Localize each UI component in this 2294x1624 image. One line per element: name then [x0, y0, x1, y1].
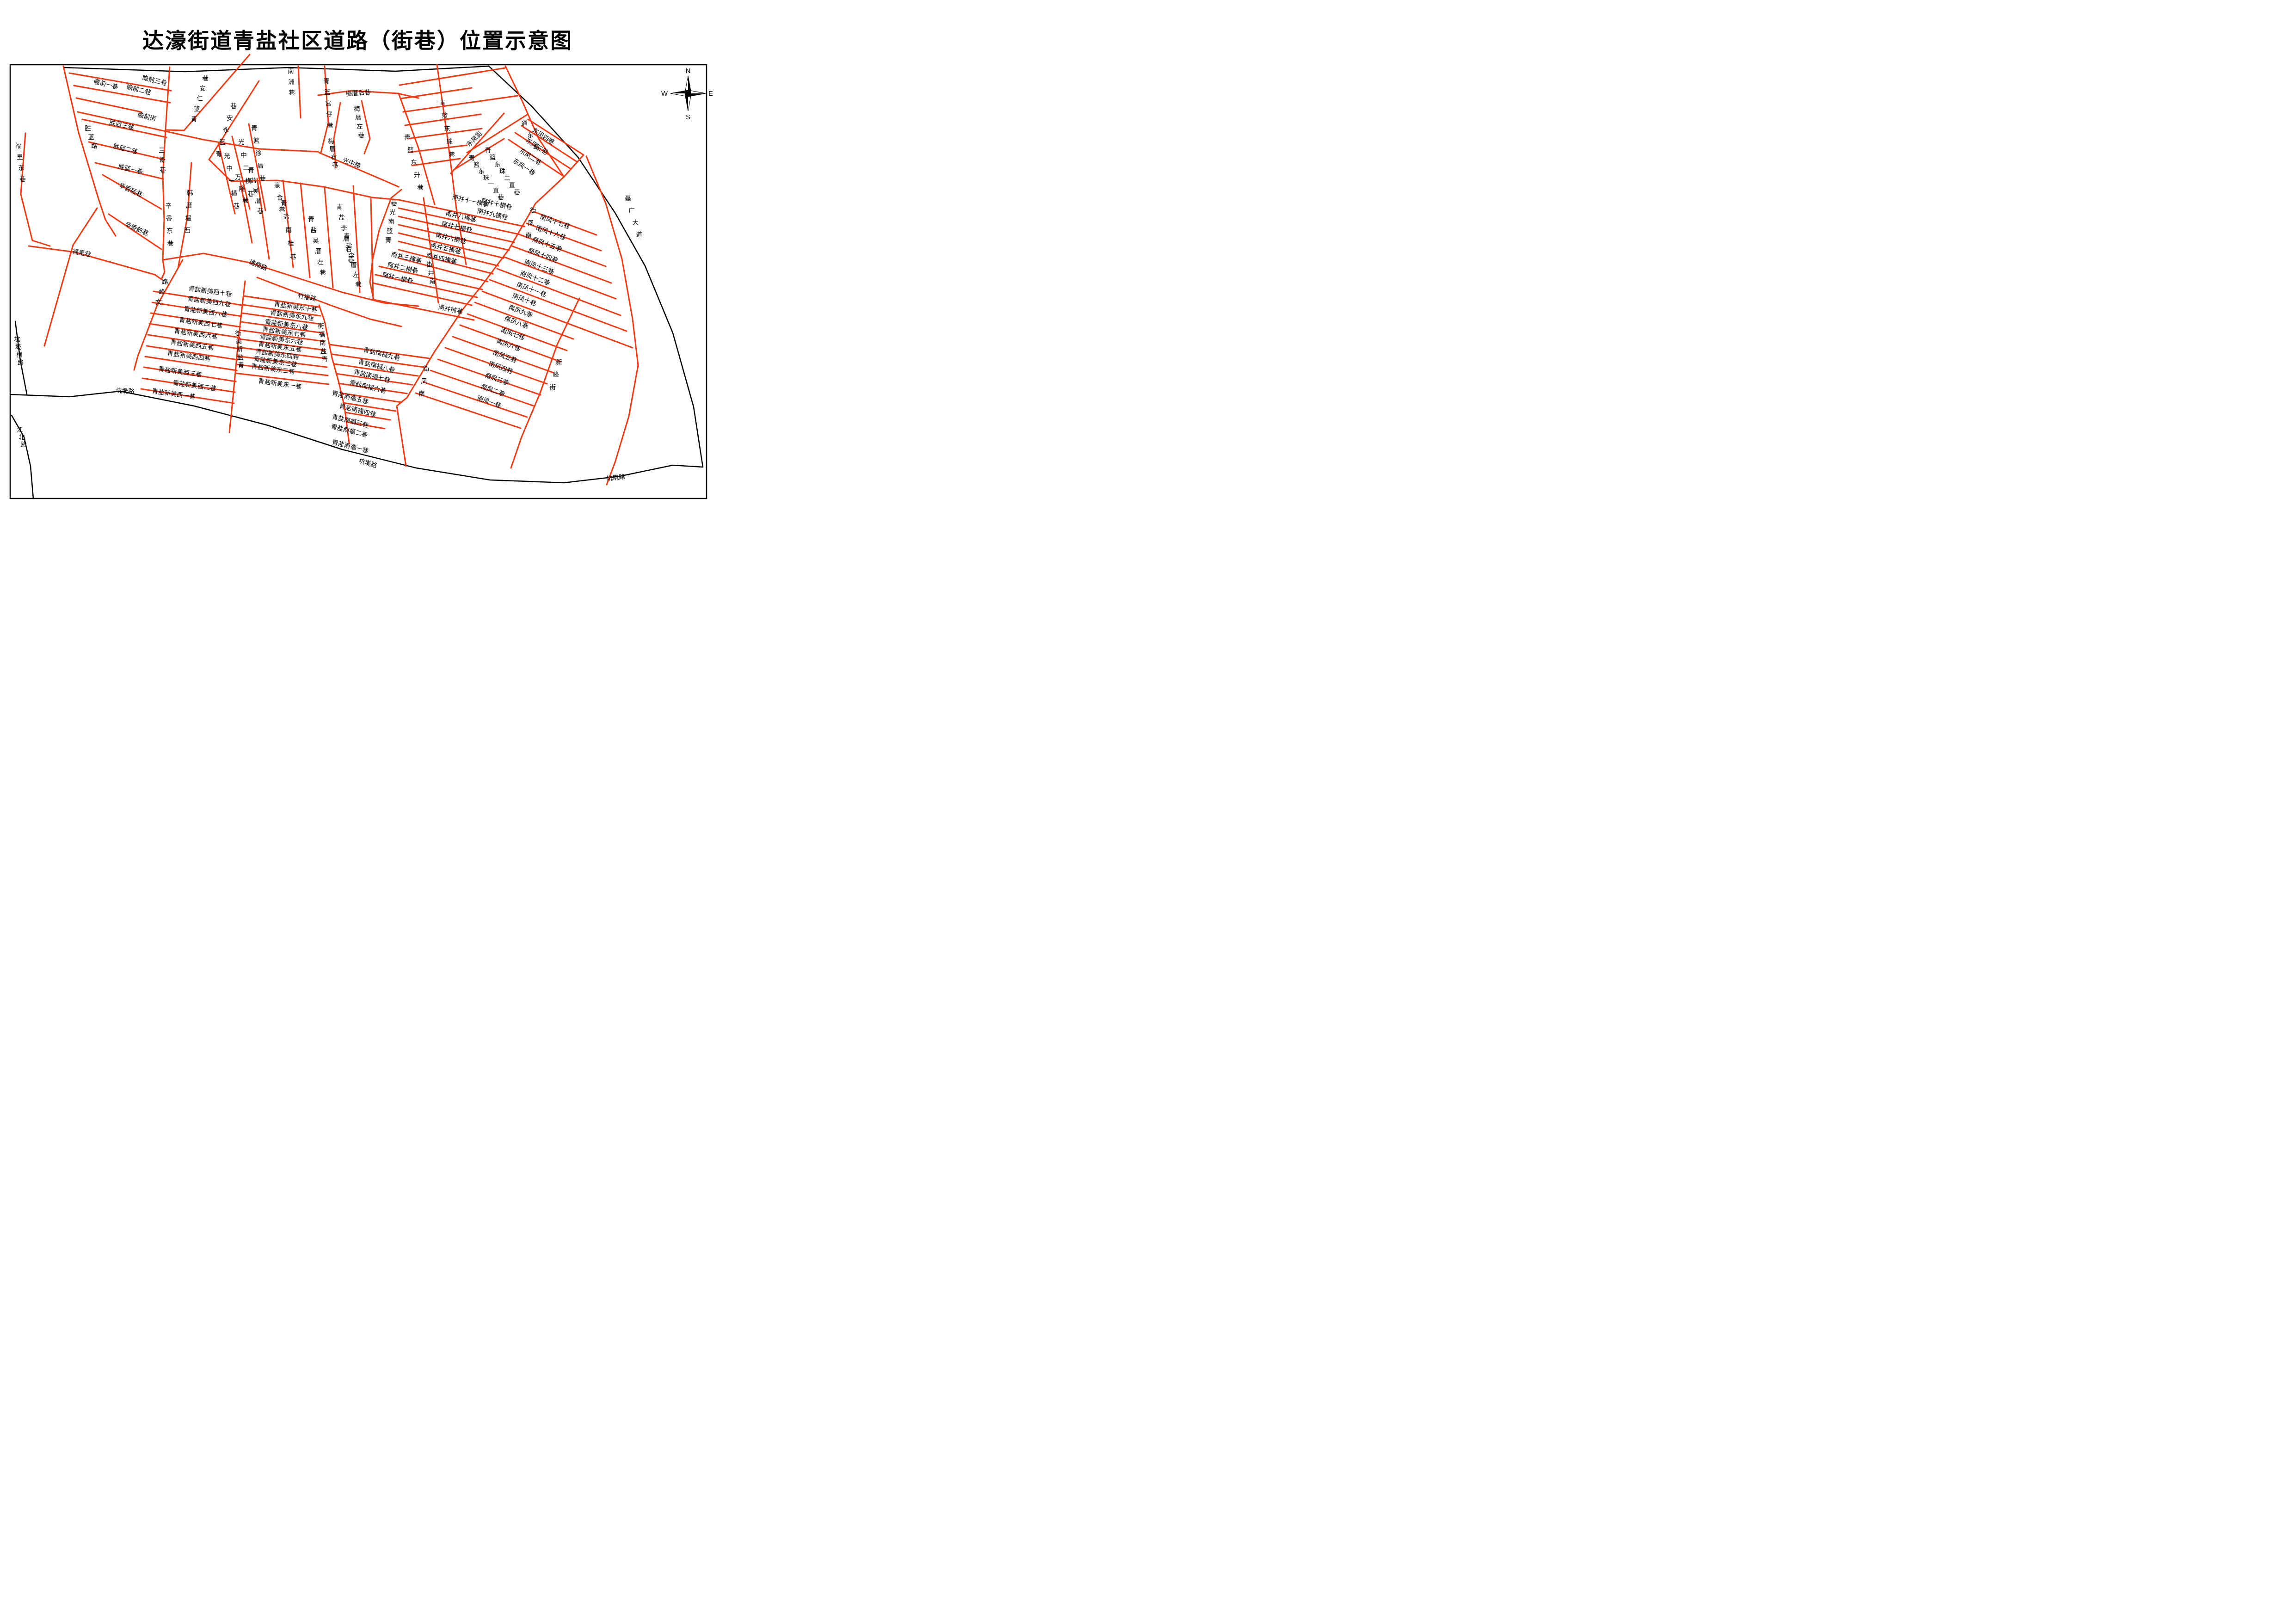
svg-text:篮: 篮	[442, 112, 448, 119]
svg-text:巷: 巷	[160, 166, 166, 173]
svg-text:辛: 辛	[165, 203, 172, 209]
svg-text:井: 井	[428, 270, 434, 277]
svg-text:青: 青	[238, 362, 244, 369]
svg-text:街: 街	[530, 207, 536, 214]
street-label: 三奇巷	[159, 147, 166, 173]
svg-text:横: 横	[16, 351, 23, 358]
street-label: 巷光南篮青	[385, 200, 397, 244]
svg-text:路: 路	[91, 142, 98, 149]
street-label: 辛香东巷	[165, 203, 174, 247]
road-north-boundary-road	[64, 66, 489, 72]
svg-text:盐: 盐	[283, 213, 289, 220]
svg-text:洲: 洲	[288, 79, 295, 86]
svg-text:左: 左	[317, 258, 324, 265]
svg-text:巷: 巷	[449, 151, 455, 158]
svg-text:巷: 巷	[355, 281, 362, 288]
svg-text:二: 二	[504, 175, 510, 182]
svg-text:盐: 盐	[237, 354, 244, 361]
svg-text:篮: 篮	[490, 154, 496, 161]
svg-text:青: 青	[321, 356, 328, 363]
street-label: 南洲巷	[288, 68, 295, 96]
compass-label-n: N	[686, 67, 691, 75]
svg-text:巷: 巷	[233, 203, 240, 209]
street-label: 梅厝右巷	[328, 138, 338, 168]
svg-text:街: 街	[318, 323, 324, 330]
svg-text:磊: 磊	[625, 195, 631, 202]
svg-text:南: 南	[285, 227, 292, 234]
svg-text:升: 升	[414, 172, 420, 178]
road-福里巷	[29, 246, 165, 279]
svg-text:万: 万	[235, 174, 241, 181]
svg-text:凤: 凤	[421, 378, 427, 385]
svg-text:新: 新	[556, 359, 562, 366]
svg-text:街: 街	[423, 365, 430, 372]
svg-text:东: 东	[494, 161, 501, 168]
svg-text:宫: 宫	[325, 100, 332, 107]
compass-label-s: S	[686, 113, 690, 121]
svg-text:吴: 吴	[313, 237, 319, 244]
svg-text:厝: 厝	[255, 197, 261, 204]
svg-text:篮: 篮	[253, 137, 260, 144]
svg-text:南: 南	[525, 232, 532, 239]
svg-text:巷: 巷	[279, 206, 285, 213]
street-label: 辛香后巷	[118, 182, 144, 198]
svg-text:青: 青	[308, 216, 314, 223]
street-label: 青篮东珠二直巷	[485, 147, 520, 196]
svg-text:篮: 篮	[219, 139, 226, 146]
svg-text:青: 青	[215, 151, 222, 158]
svg-text:奇: 奇	[159, 156, 166, 164]
svg-text:街: 街	[549, 384, 556, 391]
svg-text:东: 东	[478, 168, 485, 175]
svg-text:胜: 胜	[85, 125, 91, 132]
svg-text:梅: 梅	[328, 138, 334, 145]
svg-text:巷: 巷	[514, 189, 520, 196]
svg-text:街: 街	[426, 261, 433, 268]
svg-text:中: 中	[240, 152, 247, 159]
svg-text:巷: 巷	[202, 75, 209, 82]
svg-text:永: 永	[223, 127, 229, 134]
street-label: 巷安仁篮青	[191, 75, 209, 123]
svg-text:光: 光	[224, 153, 230, 160]
svg-text:青: 青	[323, 78, 330, 85]
svg-text:东: 东	[527, 132, 534, 139]
svg-text:路: 路	[18, 359, 24, 366]
svg-text:巷: 巷	[167, 240, 174, 247]
svg-text:一: 一	[228, 178, 235, 185]
svg-text:巷: 巷	[19, 176, 26, 183]
svg-text:峰: 峰	[159, 289, 165, 295]
svg-text:美: 美	[236, 338, 242, 345]
street-label: 坑墘路	[116, 387, 135, 395]
svg-text:吴: 吴	[252, 187, 259, 194]
svg-text:光: 光	[389, 209, 396, 216]
street-label: 青盐新美西二巷	[172, 379, 217, 392]
street-label: 坑墘路	[606, 473, 626, 482]
street-label: 竹福路	[297, 292, 317, 302]
svg-text:隆: 隆	[239, 185, 245, 192]
street-label: 南凤四巷	[488, 360, 514, 375]
street-label: 街凤南	[418, 365, 430, 397]
svg-text:南: 南	[418, 390, 425, 397]
road-青盐吴厝巷	[257, 178, 269, 259]
road-lane	[403, 96, 518, 112]
svg-text:篮: 篮	[407, 147, 414, 154]
svg-text:大: 大	[632, 219, 639, 226]
svg-text:盐: 盐	[346, 242, 352, 249]
svg-text:珠: 珠	[483, 174, 490, 181]
road-南凤一巷	[416, 393, 521, 428]
road-瞻前二巷	[76, 98, 141, 112]
street-label: 南凤六巷	[496, 338, 522, 353]
svg-text:一: 一	[488, 181, 494, 188]
svg-text:横: 横	[231, 190, 237, 197]
svg-text:青: 青	[485, 147, 491, 154]
svg-text:蓝: 蓝	[88, 134, 94, 141]
svg-text:巷: 巷	[259, 175, 266, 182]
svg-text:巷: 巷	[230, 103, 237, 110]
street-label: 南凤一巷	[476, 394, 502, 410]
svg-text:路: 路	[162, 278, 168, 285]
road-lane	[412, 159, 460, 166]
svg-text:三: 三	[159, 147, 165, 154]
svg-text:徐: 徐	[255, 150, 262, 157]
svg-text:西: 西	[184, 227, 191, 234]
svg-text:厝: 厝	[329, 146, 336, 153]
street-label: 梅厝左巷	[354, 105, 364, 139]
svg-text:青: 青	[248, 167, 254, 174]
road-青林滨江路	[44, 208, 97, 346]
road-青盐南桂巷	[301, 183, 310, 277]
svg-text:里: 里	[17, 154, 23, 160]
svg-text:盐: 盐	[320, 348, 327, 355]
street-label: 南凤二巷	[480, 383, 506, 398]
svg-text:盐: 盐	[338, 214, 345, 221]
compass-label-w: W	[661, 90, 668, 98]
svg-text:珠: 珠	[499, 168, 506, 175]
svg-text:东: 东	[411, 159, 417, 166]
street-label: 青盐新美西五巷	[170, 338, 215, 351]
svg-text:安: 安	[199, 85, 206, 92]
svg-text:厝: 厝	[351, 262, 357, 269]
svg-text:篮: 篮	[387, 228, 393, 234]
svg-text:巷: 巷	[417, 184, 424, 191]
street-label: 青盐新美东一巷	[258, 377, 302, 390]
street-label: 胜蓝三巷	[109, 118, 135, 131]
street-label: 江北路	[17, 426, 27, 448]
svg-text:江: 江	[17, 426, 23, 433]
svg-text:右: 右	[331, 154, 337, 160]
street-label: 坑墘路	[358, 457, 378, 469]
svg-text:青: 青	[191, 116, 197, 123]
street-label: 青盐新美西六巷	[174, 327, 218, 340]
svg-text:厝: 厝	[355, 114, 362, 121]
svg-text:直: 直	[509, 182, 516, 189]
svg-text:光: 光	[238, 139, 245, 146]
svg-text:巷: 巷	[327, 122, 333, 129]
svg-text:南: 南	[320, 339, 326, 346]
svg-text:新: 新	[236, 346, 243, 353]
svg-text:青: 青	[251, 125, 258, 132]
svg-text:墘: 墘	[15, 344, 22, 351]
street-label: 青盐新美西八巷	[184, 305, 228, 318]
svg-text:塭: 塭	[185, 215, 191, 221]
svg-text:豪: 豪	[274, 182, 281, 189]
street-label: 胜蓝一巷	[117, 163, 144, 176]
svg-text:盐: 盐	[250, 177, 257, 184]
road-lane	[401, 88, 472, 98]
svg-text:路: 路	[533, 143, 540, 150]
svg-text:福: 福	[15, 142, 22, 149]
svg-text:南: 南	[429, 278, 436, 285]
svg-text:东: 东	[444, 125, 450, 132]
svg-text:青: 青	[281, 200, 287, 207]
svg-text:青: 青	[439, 99, 446, 106]
street-label: 青盐吴厝左巷	[308, 216, 326, 276]
svg-text:梅: 梅	[354, 105, 360, 112]
svg-text:福: 福	[319, 331, 325, 338]
street-label: 福里巷	[72, 248, 92, 258]
svg-text:巷: 巷	[332, 161, 338, 168]
road-青盐李厝左巷	[371, 199, 373, 300]
street-label: 瞻前三巷	[141, 74, 168, 87]
svg-text:北: 北	[18, 434, 25, 441]
street-label: 梅厝后巷	[345, 88, 371, 98]
svg-text:安: 安	[227, 115, 233, 122]
svg-text:南: 南	[288, 68, 294, 75]
street-label: 青盐新美西七巷	[179, 316, 223, 329]
svg-text:青: 青	[404, 134, 411, 141]
svg-text:广: 广	[628, 207, 635, 214]
svg-text:厝: 厝	[258, 162, 264, 169]
street-label: 韩厝塭西	[184, 190, 193, 234]
svg-text:文: 文	[155, 299, 162, 306]
svg-text:路: 路	[20, 441, 27, 448]
svg-text:道: 道	[636, 231, 642, 238]
road-南凤二巷	[423, 382, 527, 417]
street-label: 南井七横巷	[441, 220, 473, 234]
svg-text:李: 李	[348, 252, 355, 259]
svg-text:青: 青	[344, 233, 350, 240]
svg-text:仔: 仔	[326, 111, 332, 118]
svg-text:篮: 篮	[324, 89, 331, 96]
svg-text:巷: 巷	[242, 197, 249, 204]
street-label: 通南路	[248, 258, 269, 272]
svg-text:青: 青	[468, 155, 475, 162]
svg-text:巷: 巷	[391, 200, 397, 207]
road-福里东巷	[21, 133, 50, 246]
street-label: 青盐新美西三巷	[158, 365, 203, 378]
svg-text:桂: 桂	[288, 240, 294, 247]
svg-text:香: 香	[166, 215, 172, 222]
svg-text:李: 李	[341, 225, 347, 232]
street-label: 新峰街	[549, 359, 562, 391]
street-label: 胜蓝二巷	[112, 142, 139, 155]
svg-text:篮: 篮	[474, 161, 480, 168]
street-label: 青篮东升巷	[404, 134, 424, 191]
svg-text:南: 南	[388, 218, 394, 225]
svg-text:青: 青	[336, 203, 343, 210]
svg-text:巷: 巷	[289, 89, 295, 96]
svg-text:巷: 巷	[290, 253, 296, 260]
street-label: 光中路	[342, 157, 362, 170]
street-label: 南凤十巷	[511, 292, 537, 308]
svg-text:盐: 盐	[310, 227, 317, 234]
street-label: 胜蓝路	[85, 125, 98, 149]
street-label: 磊广大道	[625, 195, 642, 238]
svg-text:巷: 巷	[358, 132, 364, 139]
street-label: 青盐南福五巷	[331, 389, 369, 405]
svg-text:通: 通	[521, 120, 528, 127]
svg-text:巷: 巷	[498, 194, 504, 201]
svg-text:巷: 巷	[320, 269, 326, 276]
road-青篮仁安巷	[166, 55, 250, 130]
compass: NSWE	[661, 67, 713, 121]
svg-text:韩: 韩	[187, 190, 193, 197]
svg-text:巷: 巷	[257, 208, 264, 215]
svg-text:篮: 篮	[194, 105, 200, 112]
road-南洲巷	[298, 66, 301, 118]
svg-text:仁: 仁	[197, 95, 203, 102]
street-label: 辛香前巷	[124, 220, 150, 237]
road-east-boundary	[586, 156, 638, 485]
svg-text:厝: 厝	[186, 202, 192, 209]
svg-text:厝: 厝	[315, 248, 321, 255]
svg-text:青: 青	[385, 237, 392, 244]
svg-text:东: 东	[166, 228, 173, 234]
svg-text:左: 左	[353, 271, 359, 278]
street-label: 南凤八巷	[504, 315, 529, 330]
svg-text:直: 直	[493, 187, 499, 194]
svg-text:坑: 坑	[14, 336, 20, 343]
svg-text:左: 左	[357, 123, 363, 130]
svg-text:峰: 峰	[553, 371, 559, 378]
svg-text:中: 中	[226, 165, 233, 172]
street-label: 巷安永篮青	[215, 103, 237, 158]
road-青篮东珠巷	[437, 65, 456, 209]
compass-label-e: E	[708, 90, 713, 98]
svg-text:街: 街	[235, 330, 241, 337]
svg-text:东: 东	[18, 165, 25, 172]
map-canvas: 瞻前一巷瞻前二巷瞻前三巷瞻前街胜蓝三巷胜蓝二巷胜蓝一巷辛香后巷辛香前巷福里巷梅厝…	[0, 0, 715, 506]
svg-text:珠: 珠	[446, 138, 453, 145]
map-diagram: 达濠街道青盐社区道路（街巷）位置示意图 瞻前一巷瞻前二巷瞻前三巷瞻前街胜蓝三巷胜…	[0, 0, 715, 506]
street-label: 青篮东珠巷	[439, 99, 455, 158]
svg-text:凤: 凤	[528, 220, 534, 227]
street-label: 瞻前街	[137, 111, 157, 122]
